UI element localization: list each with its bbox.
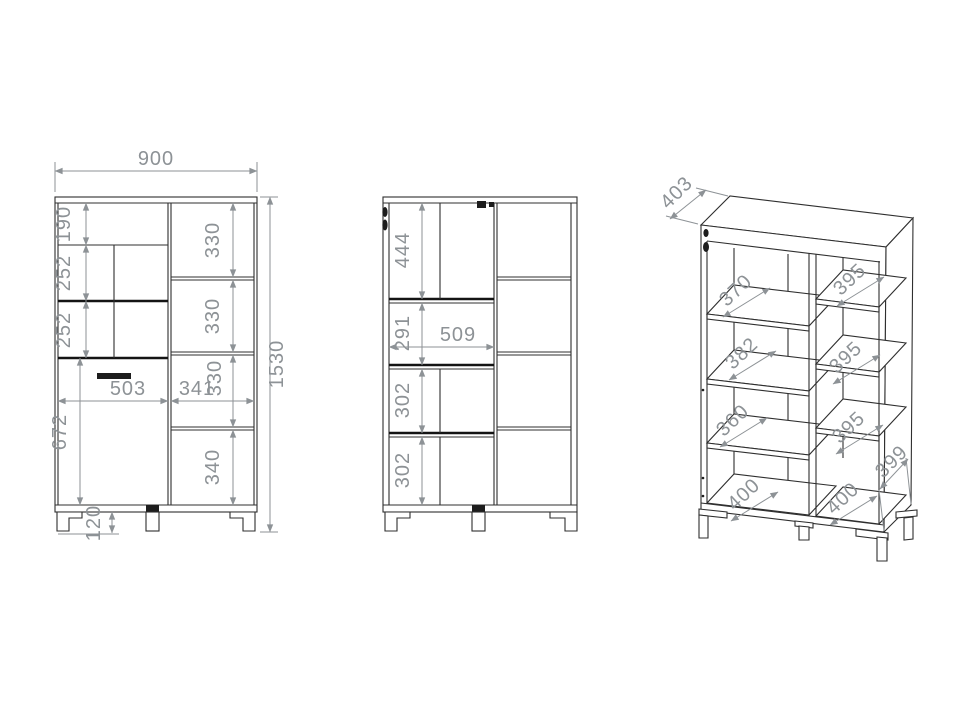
dim-top-depth: 403 [656,172,697,213]
dim-upper-cell-height: 252 [53,255,75,291]
shelf-pin-hole [702,389,705,392]
shelf-pin-hole [702,477,705,480]
center-leg-cap [472,505,485,512]
dim-total-height: 1530 [266,340,288,389]
dim-right-cell-2: 330 [202,298,224,334]
dim-door-height: 672 [49,414,71,450]
dim-interior-cell-4: 302 [392,452,414,488]
dim-interior-cell-3: 302 [392,382,414,418]
hinge-mark [703,242,709,252]
hinge-mark [703,229,708,237]
hinge-mark [382,220,387,231]
dim-right-cell-4: 340 [202,449,224,485]
front-view: 900 1530 190 252 252 672 330 330 330 340 [49,148,288,541]
dim-lower-cell-height: 252 [53,312,75,348]
cabinet-technical-drawing: 900 1530 190 252 252 672 330 330 330 340 [0,0,968,726]
dim-total-width: 900 [138,148,174,170]
dim-interior-width: 509 [440,324,476,346]
shelf-pin-hole [702,495,705,498]
dim-interior-cell-1: 444 [392,232,414,268]
hinge-plate-mark [477,201,486,208]
interior-view: 444 291 302 302 509 [382,197,577,531]
hinge-mark [382,207,387,217]
dim-door-width: 503 [110,378,146,400]
perspective-view: 403 370 382 360 400 395 395 395 400 399 [656,172,917,561]
dim-leg-height: 120 [83,505,105,541]
dim-right-column-width: 341 [179,378,215,400]
dim-right-cell-1: 330 [202,222,224,258]
hinge-plate-mark-small [489,202,494,207]
technical-drawing-page: 900 1530 190 252 252 672 330 330 330 340 [0,0,968,726]
front-view-carcass [55,197,257,512]
dim-interior-cell-2: 291 [392,315,414,351]
center-leg-cap [146,505,159,512]
dim-drawer-height: 190 [53,206,75,242]
